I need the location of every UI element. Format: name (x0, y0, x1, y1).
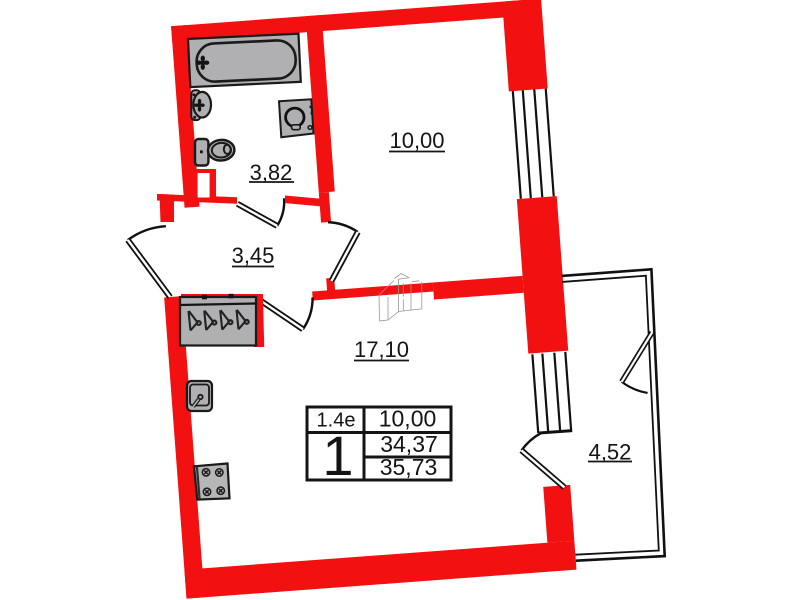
svg-text:10,00: 10,00 (379, 406, 437, 432)
svg-text:3,45: 3,45 (232, 243, 275, 268)
svg-text:10,00: 10,00 (389, 128, 444, 153)
svg-text:17,10: 17,10 (354, 337, 409, 362)
svg-text:1: 1 (322, 424, 353, 487)
svg-text:35,73: 35,73 (380, 454, 438, 480)
